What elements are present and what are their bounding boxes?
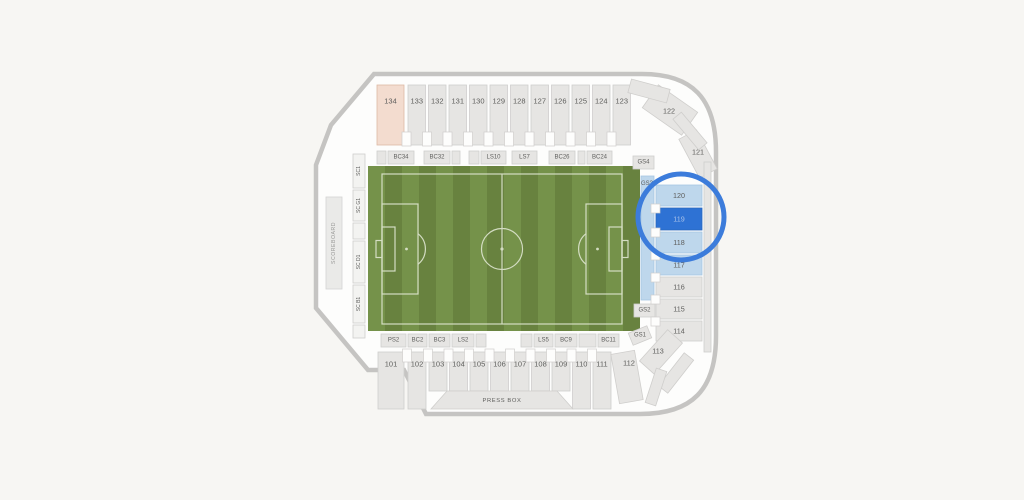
section-unlabeled [704, 162, 711, 352]
section-bc24[interactable]: BC24 [587, 151, 612, 164]
section-label: 127 [533, 97, 546, 106]
stadium-seat-map: 1341331321311301291281271261251241231221… [0, 0, 1024, 500]
section-ls10[interactable]: LS10 [481, 151, 506, 164]
section-label: 129 [492, 97, 505, 106]
section-bc9[interactable]: BC9 [555, 334, 577, 347]
section-gs4[interactable]: GS4 [633, 156, 654, 169]
section-unlabeled [353, 223, 365, 239]
aisle-notch [588, 349, 597, 362]
section-label: SC1 [356, 166, 362, 176]
section-label: 116 [673, 283, 684, 292]
aisle-notch [547, 349, 556, 362]
section-bc2[interactable]: BC2 [408, 334, 427, 347]
section-label: LS2 [458, 338, 469, 344]
section-134[interactable]: 134 [377, 85, 404, 145]
press-box: PRESS BOX [431, 391, 573, 409]
section-label: BC9 [560, 338, 572, 344]
section-label: 114 [673, 327, 684, 336]
press-box-label: PRESS BOX [483, 398, 522, 404]
section-label: BC2 [412, 338, 424, 344]
aisle-notch [505, 132, 514, 146]
section-120[interactable]: 120 [656, 185, 702, 206]
section-label: 131 [451, 97, 464, 106]
scoreboard: SCOREBOARD [326, 197, 342, 289]
section-sc-g1[interactable]: SC G1 [353, 190, 365, 221]
section-119[interactable]: 119 [656, 208, 702, 230]
section-label: 132 [431, 97, 444, 106]
section-label: 123 [615, 97, 628, 106]
section-unlabeled [353, 325, 365, 338]
section-sc-d1[interactable]: SC D1 [353, 241, 365, 283]
aisle-notch [651, 273, 660, 282]
scoreboard-label: SCOREBOARD [331, 222, 337, 264]
section-bc26[interactable]: BC26 [549, 151, 575, 164]
section-bc3[interactable]: BC3 [429, 334, 450, 347]
section-label: 101 [385, 360, 398, 369]
section-label: 128 [513, 97, 526, 106]
section-label: 105 [473, 360, 486, 369]
section-label: LS7 [519, 155, 530, 161]
section-label: LS5 [538, 338, 549, 344]
field-stripe [453, 166, 470, 331]
aisle-notch [403, 349, 412, 362]
section-label: 106 [493, 360, 506, 369]
section-label: GS1 [634, 333, 647, 339]
section-label: 126 [554, 97, 567, 106]
aisle-notch [651, 204, 660, 213]
section-label: 133 [410, 97, 423, 106]
section-bc34[interactable]: BC34 [388, 151, 414, 164]
section-label: BC26 [554, 155, 570, 161]
section-label: 108 [534, 360, 547, 369]
aisle-notch [423, 132, 432, 146]
aisle-notch [651, 295, 660, 304]
aisle-notch [587, 132, 596, 146]
section-label: BC11 [601, 338, 616, 344]
section-gs2[interactable]: GS2 [634, 304, 655, 317]
section-sc1[interactable]: SC1 [353, 154, 365, 188]
seatmap-page: 1341331321311301291281271261251241231221… [0, 0, 1024, 500]
section-label: BC34 [393, 155, 409, 161]
aisle-notch [567, 349, 576, 362]
aisle-notch [443, 132, 452, 146]
aisle-notch [484, 132, 493, 146]
aisle-notch [485, 349, 494, 362]
section-ls5[interactable]: LS5 [534, 334, 553, 347]
aisle-notch [444, 349, 453, 362]
aisle-notch [566, 132, 575, 146]
section-label: 102 [411, 360, 424, 369]
section-label: 119 [673, 215, 684, 224]
aisle-notch [525, 132, 534, 146]
section-sc-b1[interactable]: SC B1 [353, 285, 365, 323]
section-bc11[interactable]: BC11 [598, 334, 619, 347]
section-label: BC24 [592, 155, 608, 161]
section-label: 110 [576, 360, 588, 369]
aisle-notch [651, 228, 660, 237]
section-label: BC32 [429, 155, 445, 161]
aisle-notch [402, 132, 411, 146]
section-label: SC B1 [356, 297, 362, 312]
aisle-notch [526, 349, 535, 362]
section-label: 113 [652, 347, 663, 356]
section-label: 103 [432, 360, 445, 369]
soccer-field [368, 166, 640, 331]
section-label: 112 [623, 359, 635, 368]
field-stripe [419, 166, 436, 331]
aisle-notch [506, 349, 515, 362]
section-label: 125 [574, 97, 587, 106]
section-label: 124 [595, 97, 608, 106]
section-label: 122 [663, 107, 675, 116]
section-label: SC G1 [356, 198, 362, 213]
section-115[interactable]: 115 [656, 299, 702, 319]
section-bc32[interactable]: BC32 [424, 151, 450, 164]
section-label: 104 [452, 360, 465, 369]
section-116[interactable]: 116 [656, 277, 702, 297]
section-unlabeled [377, 151, 386, 164]
aisle-notch [464, 132, 473, 146]
section-unlabeled [476, 334, 486, 347]
section-unlabeled [452, 151, 460, 164]
section-ls7[interactable]: LS7 [512, 151, 537, 164]
section-unlabeled [579, 334, 596, 347]
section-unlabeled [578, 151, 585, 164]
field-stripe [385, 166, 402, 331]
section-label: GS2 [638, 308, 651, 314]
section-label: LS10 [486, 155, 501, 161]
section-label: 130 [472, 97, 485, 106]
section-label: 134 [384, 97, 397, 106]
aisle-notch [607, 132, 616, 146]
section-label: BC3 [434, 338, 446, 344]
section-unlabeled [469, 151, 479, 164]
aisle-notch [651, 317, 660, 326]
section-118[interactable]: 118 [656, 232, 702, 253]
aisle-notch [465, 349, 474, 362]
section-ps2[interactable]: PS2 [381, 334, 406, 347]
section-label: 107 [514, 360, 527, 369]
section-label: PS2 [388, 338, 400, 344]
section-label: SC D1 [356, 254, 362, 269]
section-ls2[interactable]: LS2 [452, 334, 474, 347]
section-label: GS4 [637, 160, 650, 166]
section-unlabeled [521, 334, 532, 347]
section-101[interactable]: 101 [378, 352, 404, 409]
section-label: 115 [673, 305, 684, 314]
aisle-notch [424, 349, 433, 362]
field-stripe [521, 166, 538, 331]
aisle-notch [546, 132, 555, 146]
section-label: 111 [596, 360, 607, 369]
section-label: 120 [673, 191, 685, 200]
section-label: 109 [555, 360, 568, 369]
field-stripe [555, 166, 572, 331]
section-label: 118 [673, 238, 684, 247]
